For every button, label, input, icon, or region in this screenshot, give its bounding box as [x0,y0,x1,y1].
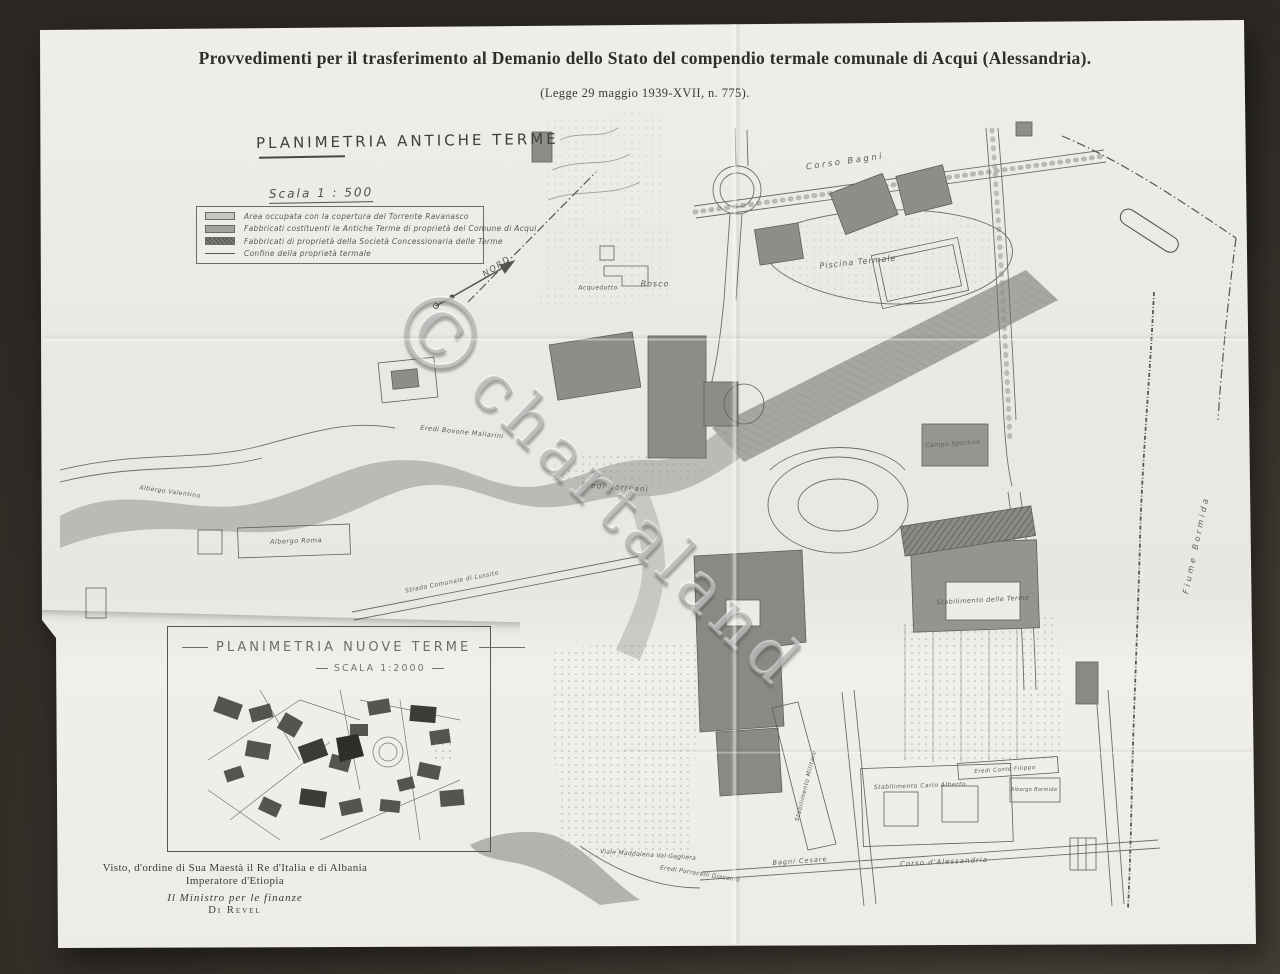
map-label: Stabilimento Carlo Alberto [874,781,966,791]
map-label: Acquedotto [578,285,618,292]
inset-scale-text: SCALA 1:2000 [334,663,426,674]
legend-swatch [205,212,235,220]
legend-label: Confine della proprietà termale [244,249,371,258]
minister-signature: Di Revel [55,905,415,916]
inset-map-heading: PLANIMETRIA NUOVE TERME [182,640,525,655]
legend-swatch [205,253,235,254]
legend-row: Fabbricati di proprietà della Società Co… [197,236,483,247]
map-label: Corso d'Alessandria [900,856,988,869]
minister-title: Il Ministro per le finanze [55,892,415,904]
document-title: Provvedimenti per il trasferimento al De… [60,48,1230,69]
approval-line-1: Visto, d'ordine di Sua Maestà il Re d'It… [55,862,415,874]
legend-label: Area occupata con la copertura del Torre… [244,212,469,221]
legend-row: Confine della proprietà termale [197,248,483,259]
map-label: Albergo Roma [270,536,322,546]
legend-row: Area occupata con la copertura del Torre… [197,211,483,222]
map-label: Albergo Valentino [139,484,201,500]
map-label: Albergo Bormida [1011,787,1057,793]
horizontal-fold-crease-lower [620,748,1252,754]
legend-swatch [205,225,235,233]
map-label: Bosco [641,280,670,289]
map-label: Bagni Cesare [772,855,828,867]
legend-label: Fabbricati di proprietà della Società Co… [244,237,503,246]
map-label: Corso Bagni [805,152,884,173]
map-label: Campo Sportivo [925,439,980,450]
legend-swatch [205,237,235,245]
legend-label: Fabbricati costituenti le Antiche Terme … [244,224,537,233]
horizontal-fold-crease-upper [44,334,1249,341]
law-reference: (Legge 29 maggio 1939-XVII, n. 775). [60,86,1230,101]
paper-shadow: Provvedimenti per il trasferimento al De… [0,0,1280,974]
document-paper: Provvedimenti per il trasferimento al De… [0,0,1280,974]
main-map-scale-label: Scala 1 : 500 [269,185,374,204]
map-label: Strada Comunale di Lussito [404,569,499,594]
map-label: Eredi Conte Filippo [974,765,1036,775]
legend-row: Fabbricati costituenti le Antiche Terme … [197,223,483,234]
map-label: Fiume Bormida [1181,495,1211,595]
vertical-fold-crease [731,24,741,944]
map-label: Eredi Porracelli Giacomo [660,864,741,884]
approval-line-2: Imperatore d'Etiopia [55,875,415,887]
inset-heading-text: PLANIMETRIA NUOVE TERME [216,640,471,655]
inset-map-scale-label: SCALA 1:2000 [316,663,444,674]
map-label: Stabilimento Militare [794,750,818,822]
map-label: Piscina Termale [819,253,897,270]
approval-block: Visto, d'ordine di Sua Maestà il Re d'It… [55,862,415,916]
map-label: Viale Maddalena Val Gagliera [600,848,697,862]
map-legend: Area occupata con la copertura del Torre… [196,206,484,264]
map-label: Stabilimento delle Terme [936,594,1030,607]
inset-map-frame [167,626,491,852]
map-label: NORD [481,254,513,280]
photo-background: Provvedimenti per il trasferimento al De… [0,0,1280,974]
